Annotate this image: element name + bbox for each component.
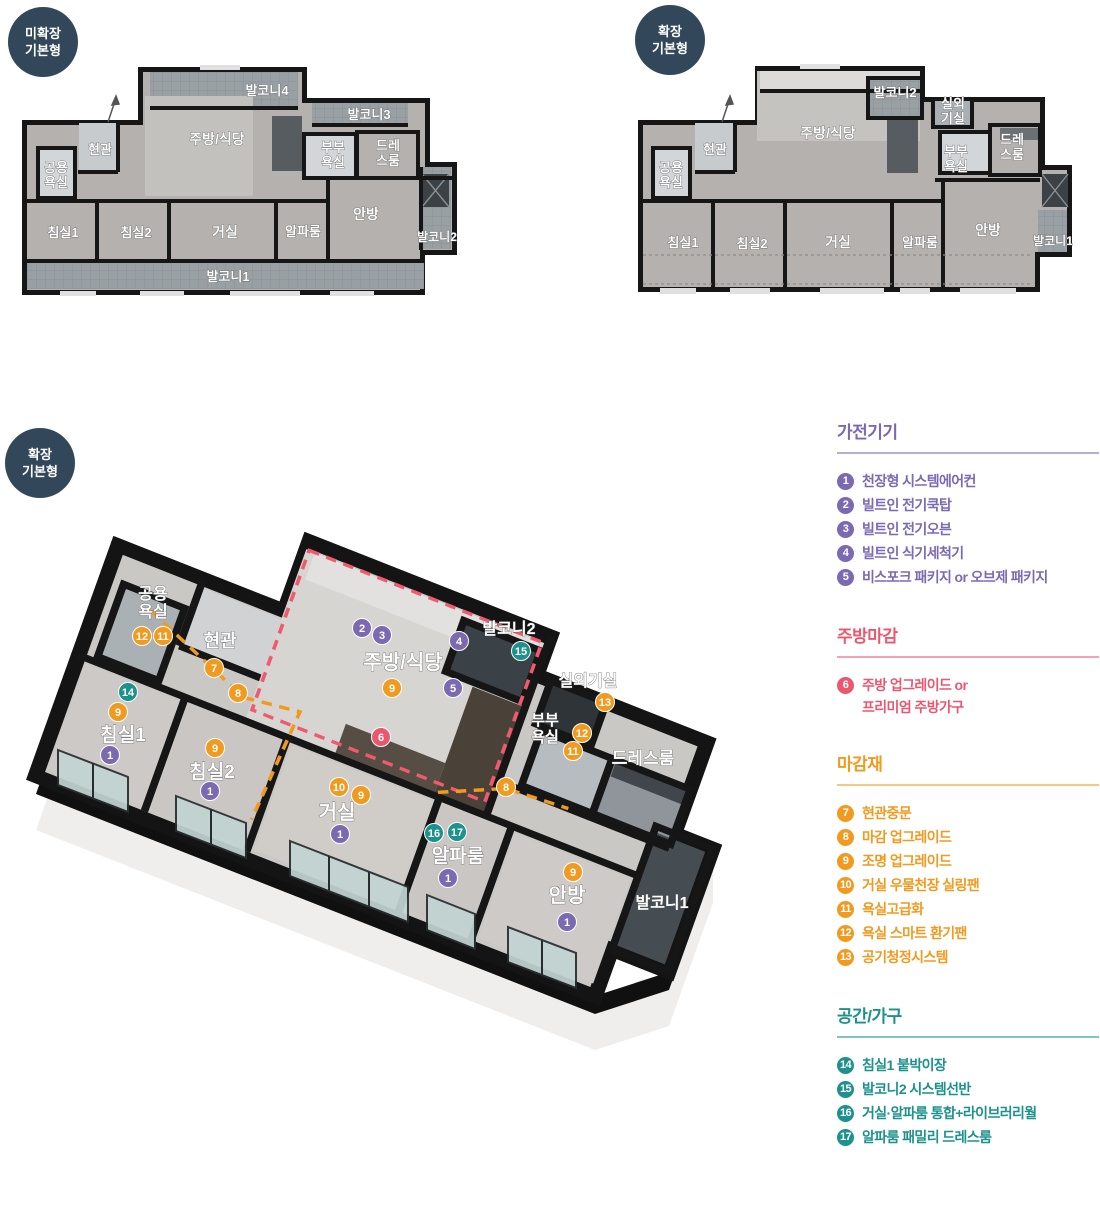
floorplan-infographic: { "accent_colors": { "purple": "#7b6ab2"… <box>0 0 1100 1214</box>
feature-marker: 1 <box>439 869 458 888</box>
legend-item-line2: 프리미엄 주방가구 <box>837 697 1099 717</box>
legend-item-number: 4 <box>837 545 854 562</box>
room-label: 현관 <box>703 142 727 157</box>
legend-item-label: 거실·알파룸 통합+라이브러리월 <box>862 1103 1037 1123</box>
feature-marker: 1 <box>558 913 577 932</box>
feature-marker: 9 <box>564 863 583 882</box>
room-label: 거실 <box>319 801 356 824</box>
feature-marker: 8 <box>229 684 248 703</box>
legend-item-label: 조명 업그레이드 <box>862 851 951 871</box>
room-label: 알파룸 <box>432 845 484 867</box>
room-label: 알파룸 <box>902 235 938 250</box>
legend-item-number: 2 <box>837 497 854 514</box>
legend-item: 15발코니2 시스템선반 <box>837 1077 1099 1101</box>
legend-section: 마감재7현관중문8마감 업그레이드9조명 업그레이드10거실 우물천장 실링팬1… <box>837 750 1099 969</box>
legend-item: 17알파룸 패밀리 드레스룸 <box>837 1125 1099 1149</box>
legend-item-number: 6 <box>837 677 854 694</box>
legend-section-title: 마감재 <box>837 750 1099 775</box>
feature-marker: 12 <box>573 724 592 743</box>
legend-item-number: 7 <box>837 805 854 822</box>
legend-item-label: 빌트인 식기세척기 <box>862 543 964 563</box>
legend-section-title: 공간/가구 <box>837 1002 1099 1027</box>
svg-text:11: 11 <box>567 746 579 758</box>
room-label: 침실2 <box>189 761 235 783</box>
svg-text:16: 16 <box>428 828 440 840</box>
svg-text:8: 8 <box>503 782 509 794</box>
svg-text:9: 9 <box>212 743 218 755</box>
legend-item: 1천장형 시스템에어컨 <box>837 469 1099 493</box>
room-label: 거실 <box>212 224 238 240</box>
legend-item-label: 거실 우물천장 실링팬 <box>862 875 979 895</box>
legend-item-number: 15 <box>837 1081 854 1098</box>
svg-text:7: 7 <box>211 663 217 675</box>
feature-marker: 7 <box>205 659 224 678</box>
feature-marker: 17 <box>448 823 467 842</box>
svg-text:1: 1 <box>564 917 570 929</box>
legend-item: 4빌트인 식기세척기 <box>837 541 1099 565</box>
room-label: 안방 <box>975 222 1001 238</box>
legend-item-label: 주방 업그레이드 or <box>862 675 967 695</box>
room-label: 발코니4 <box>245 83 289 98</box>
svg-text:17: 17 <box>451 827 463 839</box>
legend-item-number: 8 <box>837 829 854 846</box>
room-label: 침실1 <box>47 225 78 240</box>
feature-marker: 13 <box>596 693 615 712</box>
entry-arrow <box>108 96 119 122</box>
legend-item-number: 1 <box>837 473 854 490</box>
legend-item-number: 12 <box>837 925 854 942</box>
legend-item: 6주방 업그레이드 or <box>837 673 1099 697</box>
legend-item-label: 발코니2 시스템선반 <box>862 1079 971 1099</box>
room-label: 현관 <box>88 142 112 157</box>
svg-text:12: 12 <box>576 728 588 740</box>
legend-item-label: 현관중문 <box>862 803 911 823</box>
legend-section-rule <box>837 656 1099 658</box>
legend-item-number: 16 <box>837 1105 854 1122</box>
legend-item-number: 13 <box>837 949 854 966</box>
svg-text:1: 1 <box>337 829 343 841</box>
legend-item: 5비스포크 패키지 or 오브제 패키지 <box>837 565 1099 589</box>
legend-item-label: 천장형 시스템에어컨 <box>862 471 976 491</box>
room-label: 공용욕실 <box>659 160 683 190</box>
room-label: 발코니2 <box>873 85 916 100</box>
feature-marker: 5 <box>444 679 463 698</box>
legend-item-number: 9 <box>837 853 854 870</box>
svg-text:1: 1 <box>445 873 451 885</box>
svg-text:9: 9 <box>570 867 576 879</box>
feature-marker: 2 <box>353 619 372 638</box>
svg-text:1: 1 <box>207 786 213 798</box>
legend-section: 공간/가구14침실1 붙박이장15발코니2 시스템선반16거실·알파룸 통합+라… <box>837 1002 1099 1149</box>
legend-section: 주방마감6주방 업그레이드 or프리미엄 주방가구 <box>837 622 1099 717</box>
room-label: 알파룸 <box>285 224 321 239</box>
feature-marker: 6 <box>372 728 391 747</box>
badge-line: 확장 <box>658 23 682 40</box>
room-label: 드레스룸 <box>1000 132 1024 162</box>
legend-item: 12욕실 스마트 환기팬 <box>837 921 1099 945</box>
legend-item-number: 5 <box>837 569 854 586</box>
legend-panel: 가전기기1천장형 시스템에어컨2빌트인 전기쿡탑3빌트인 전기오븐4빌트인 식기… <box>837 418 1099 1182</box>
room-label: 주방/식당 <box>800 125 856 141</box>
legend-item-label: 마감 업그레이드 <box>862 827 951 847</box>
room-label: 발코니2 <box>482 620 535 638</box>
room-label: 발코니1 <box>635 894 688 912</box>
svg-text:11: 11 <box>157 631 169 643</box>
legend-item: 9조명 업그레이드 <box>837 849 1099 873</box>
svg-text:5: 5 <box>450 683 456 695</box>
room-label: 침실1 <box>667 235 698 250</box>
legend-item: 3빌트인 전기오븐 <box>837 517 1099 541</box>
svg-text:3: 3 <box>379 630 385 642</box>
elevator-shaft <box>1042 174 1068 207</box>
svg-text:14: 14 <box>122 687 135 699</box>
feature-marker: 1 <box>101 746 120 765</box>
floorplan-iso: 공용욕실현관주방/식당발코니2실외기실부부욕실드레스룸침실1침실2거실알파룸안방… <box>0 420 840 1100</box>
legend-item: 13공기청정시스템 <box>837 945 1099 969</box>
legend-item-number: 3 <box>837 521 854 538</box>
room-label: 거실 <box>825 234 851 250</box>
entry-arrow <box>722 96 733 122</box>
legend-item-label: 빌트인 전기오븐 <box>862 519 951 539</box>
room-label: 발코니1 <box>1033 233 1073 248</box>
badge-line: 미확장 <box>25 25 61 42</box>
feature-marker: 1 <box>201 782 220 801</box>
feature-marker: 14 <box>119 683 138 702</box>
room-label: 발코니2 <box>417 229 457 244</box>
feature-marker: 1 <box>331 825 350 844</box>
legend-section-rule <box>837 1036 1099 1038</box>
feature-marker: 9 <box>352 786 371 805</box>
room-label: 부부욕실 <box>944 144 968 174</box>
room-label: 주방/식당 <box>189 131 245 147</box>
feature-marker: 9 <box>206 739 225 758</box>
room-label: 침실2 <box>120 225 151 240</box>
room-label: 주방/식당 <box>363 651 443 674</box>
room-label: 발코니3 <box>347 107 390 122</box>
legend-item-number: 17 <box>837 1129 854 1146</box>
legend-item-label: 빌트인 전기쿡탑 <box>862 495 951 515</box>
feature-marker: 10 <box>330 778 349 797</box>
room-label: 실외기실 <box>941 96 965 126</box>
legend-item: 10거실 우물천장 실링팬 <box>837 873 1099 897</box>
room-label: 실외기실 <box>559 672 618 690</box>
legend-item-label: 알파룸 패밀리 드레스룸 <box>862 1127 991 1147</box>
legend-item-label: 욕실고급화 <box>862 899 923 919</box>
feature-marker: 11 <box>564 742 583 761</box>
svg-text:9: 9 <box>358 790 364 802</box>
room-label: 부부욕실 <box>321 140 345 170</box>
floorplan-unexpanded: 발코니4발코니3주방/식당현관공용욕실부부욕실드레스룸침실1침실2거실알파룸안방… <box>15 55 470 305</box>
room-label: 현관 <box>203 631 237 651</box>
legend-item: 2빌트인 전기쿡탑 <box>837 493 1099 517</box>
legend-item: 16거실·알파룸 통합+라이브러리월 <box>837 1101 1099 1125</box>
feature-marker: 11 <box>154 627 173 646</box>
legend-item-label: 침실1 붙박이장 <box>862 1055 946 1075</box>
feature-marker: 3 <box>373 626 392 645</box>
svg-text:13: 13 <box>599 697 611 709</box>
feature-marker: 4 <box>450 632 469 651</box>
feature-marker: 9 <box>383 679 402 698</box>
legend-item: 7현관중문 <box>837 801 1099 825</box>
svg-text:6: 6 <box>378 732 384 744</box>
feature-marker: 16 <box>425 824 444 843</box>
room-label: 부부욕실 <box>531 712 559 746</box>
room-label: 드레스룸 <box>612 749 675 768</box>
room-label: 침실2 <box>736 236 767 251</box>
legend-section-rule <box>837 452 1099 454</box>
legend-item: 14침실1 붙박이장 <box>837 1053 1099 1077</box>
svg-text:8: 8 <box>235 688 241 700</box>
legend-item-label: 공기청정시스템 <box>862 947 948 967</box>
room-label: 안방 <box>353 206 379 222</box>
legend-item-number: 10 <box>837 877 854 894</box>
duct-block <box>272 116 302 171</box>
svg-text:2: 2 <box>359 623 365 635</box>
feature-marker: 12 <box>133 627 152 646</box>
legend-section-rule <box>837 784 1099 786</box>
svg-text:10: 10 <box>333 782 345 794</box>
legend-item-number: 14 <box>837 1057 854 1074</box>
legend-item-label: 비스포크 패키지 or 오브제 패키지 <box>862 567 1048 587</box>
room-label: 공용욕실 <box>44 160 68 190</box>
room-label: 안방 <box>549 884 586 907</box>
floorplan-expanded: 발코니2실외기실주방/식당현관공용욕실부부욕실드레스룸침실1침실2거실알파룸안방… <box>630 55 1090 305</box>
legend-item-number: 11 <box>837 901 854 918</box>
legend-item: 11욕실고급화 <box>837 897 1099 921</box>
feature-marker: 15 <box>512 642 531 661</box>
svg-text:9: 9 <box>389 683 395 695</box>
svg-text:9: 9 <box>115 707 121 719</box>
legend-item: 8마감 업그레이드 <box>837 825 1099 849</box>
legend-section-title: 가전기기 <box>837 418 1099 443</box>
legend-section-title: 주방마감 <box>837 622 1099 647</box>
room-label: 드레스룸 <box>376 138 400 168</box>
duct-block <box>887 118 918 173</box>
room-label: 발코니1 <box>206 269 249 284</box>
svg-text:4: 4 <box>456 636 463 648</box>
svg-text:15: 15 <box>515 646 527 658</box>
legend-section: 가전기기1천장형 시스템에어컨2빌트인 전기쿡탑3빌트인 전기오븐4빌트인 식기… <box>837 418 1099 589</box>
legend-item-label: 욕실 스마트 환기팬 <box>862 923 967 943</box>
feature-marker: 9 <box>109 703 128 722</box>
svg-text:12: 12 <box>136 631 148 643</box>
room-label: 침실1 <box>100 724 146 746</box>
svg-text:1: 1 <box>107 750 113 762</box>
feature-marker: 8 <box>497 778 516 797</box>
